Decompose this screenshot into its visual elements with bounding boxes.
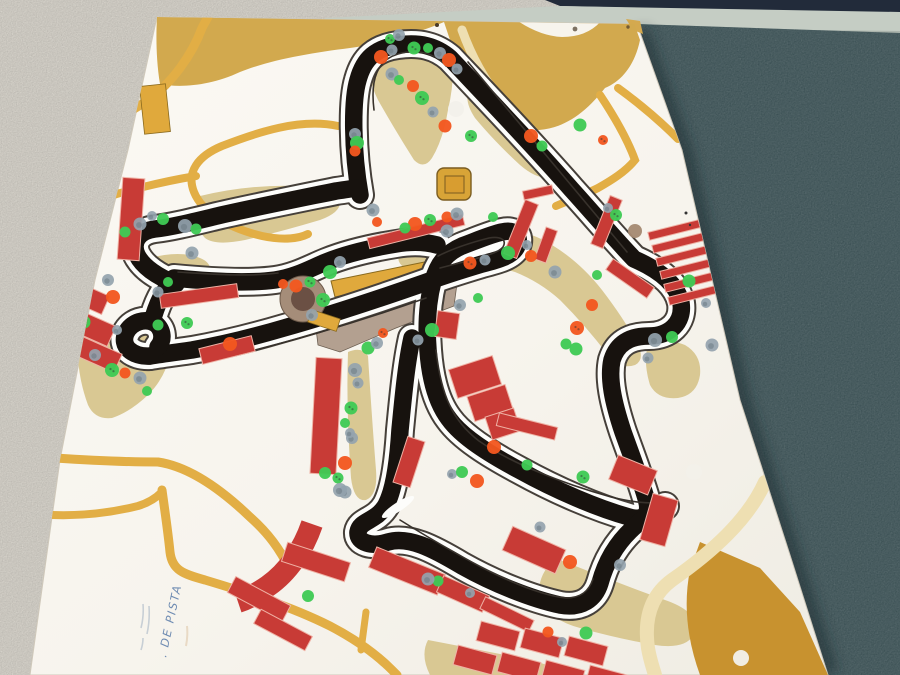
pin-sticker-smudge [456, 303, 461, 308]
pin-sticker-smudge [605, 207, 610, 212]
pin-sticker-smudge [454, 68, 459, 73]
pin-sticker [501, 246, 515, 260]
pin-sticker-ink [467, 261, 469, 263]
pin-sticker-ink [348, 406, 350, 408]
pin-sticker [340, 418, 350, 428]
pin-sticker [666, 331, 678, 343]
pin-sticker [537, 141, 548, 152]
photo-svg: . DE PISTA [0, 0, 900, 675]
pin-sticker-ink [184, 321, 186, 323]
grandstand-building [310, 357, 342, 474]
pin-sticker-smudge [155, 291, 160, 296]
pin-sticker-ink [307, 280, 309, 282]
pin-sticker-smudge [104, 278, 109, 283]
pin-sticker-ink [577, 328, 579, 330]
pin-sticker [302, 590, 314, 602]
pin-sticker [181, 317, 193, 329]
pin-sticker [378, 328, 388, 338]
pin-sticker [142, 386, 152, 396]
pin-sticker-smudge [355, 382, 360, 387]
pin-sticker-smudge [415, 339, 420, 344]
pin-sticker-smudge [388, 72, 394, 78]
pin-sticker-smudge [449, 473, 454, 478]
pin-sticker [415, 91, 429, 105]
pin-sticker-ink [427, 218, 429, 220]
pin-sticker-smudge [651, 338, 657, 344]
pin-sticker-smudge [537, 526, 542, 531]
pin-sticker-smudge [336, 260, 341, 265]
pin-sticker [522, 460, 533, 471]
pin-sticker [465, 130, 477, 142]
pin-sticker-smudge [188, 251, 194, 257]
pin-sticker-smudge [524, 244, 529, 249]
pin-sticker [473, 293, 483, 303]
pin-sticker [563, 555, 577, 569]
pin-sticker [163, 277, 173, 287]
pin-sticker [586, 299, 598, 311]
pin-sticker-ink [390, 39, 392, 41]
pin-sticker-smudge [136, 222, 142, 228]
pin-sticker-smudge [482, 259, 487, 264]
pin-sticker [456, 466, 468, 478]
pin-sticker-ink [470, 263, 472, 265]
pin-sticker [305, 277, 316, 288]
pin-sticker [316, 293, 330, 307]
pin-sticker [425, 323, 439, 337]
helipad-square [437, 168, 471, 200]
pin-sticker-smudge [703, 302, 708, 307]
pin-sticker [290, 280, 303, 293]
pin-sticker [191, 224, 202, 235]
pin-sticker-smudge [467, 592, 472, 597]
pin-sticker-smudge [616, 563, 621, 568]
pin-sticker-ink [583, 477, 585, 479]
pin-sticker-smudge [389, 49, 394, 54]
pin-sticker [424, 214, 436, 226]
pin-sticker [570, 343, 583, 356]
pin-sticker-smudge [181, 224, 187, 230]
pin-sticker-ink [112, 370, 114, 372]
pin-sticker-ink [600, 138, 602, 140]
pin-sticker-ink [387, 37, 389, 39]
pin-sticker [120, 368, 131, 379]
pin-sticker [394, 75, 404, 85]
pin-sticker [448, 101, 464, 117]
pin-sticker [350, 146, 361, 157]
pin-sticker-smudge [351, 368, 357, 374]
pin-sticker [598, 135, 608, 145]
pin-sticker-smudge [347, 432, 352, 437]
pin-sticker-ink [187, 323, 189, 325]
circuit-map-board-photo: . DE PISTA [0, 0, 900, 675]
pin-sticker-smudge [436, 51, 441, 56]
pin-sticker [543, 627, 554, 638]
pin-sticker-smudge [114, 329, 119, 334]
pin-sticker [525, 250, 537, 262]
pin-sticker-ink [323, 300, 325, 302]
pin-sticker-ink [109, 368, 111, 370]
pin-sticker [574, 119, 587, 132]
pin-sticker-ink [574, 326, 576, 328]
pin-sticker-ink [338, 478, 340, 480]
pin-sticker-ink [580, 475, 582, 477]
pin-sticker-smudge [308, 313, 313, 318]
pin-sticker [120, 227, 131, 238]
pin-sticker [345, 402, 358, 415]
pin-sticker-ink [380, 331, 382, 333]
pin-sticker-smudge [136, 376, 142, 382]
pin-sticker-smudge [149, 215, 154, 220]
pin-sticker [223, 337, 237, 351]
pin-sticker [106, 290, 120, 304]
pin-sticker [592, 270, 602, 280]
pin-sticker [408, 42, 421, 55]
gold-structure [140, 84, 171, 134]
pin-sticker [323, 265, 337, 279]
pin-sticker-ink [411, 46, 413, 48]
pin-sticker-ink [383, 333, 385, 335]
pin-sticker-smudge [430, 111, 435, 116]
pin-sticker-ink [471, 136, 473, 138]
pin-sticker-smudge [559, 641, 564, 646]
pin-sticker-ink [422, 98, 424, 100]
pin-sticker [423, 43, 433, 53]
pin-sticker-ink [320, 298, 322, 300]
pin-sticker [524, 129, 538, 143]
pin-sticker [338, 456, 352, 470]
pin-sticker [157, 213, 169, 225]
pin-sticker [374, 50, 388, 64]
grandstand-building [434, 311, 459, 340]
pin-sticker-ink [351, 408, 353, 410]
pin-sticker-smudge [645, 357, 650, 362]
pin-sticker [464, 257, 477, 270]
pin-sticker [570, 321, 584, 335]
pin-sticker [610, 209, 622, 221]
pin-sticker-smudge [395, 33, 400, 38]
pin-sticker [407, 80, 419, 92]
pin-sticker-ink [468, 134, 470, 136]
pin-sticker [733, 650, 749, 666]
pin-sticker [333, 473, 344, 484]
pin-sticker-ink [603, 140, 605, 142]
pin-sticker-ink [414, 48, 416, 50]
pin-sticker-ink [310, 282, 312, 284]
pin-sticker [372, 217, 382, 227]
pin-sticker [105, 363, 119, 377]
pin-sticker [278, 279, 288, 289]
pin-sticker [577, 471, 590, 484]
pin-sticker-ink [616, 215, 618, 217]
pin-sticker-smudge [336, 488, 342, 494]
pin-sticker [683, 275, 696, 288]
pin-sticker-smudge [424, 577, 430, 583]
pin-sticker-ink [419, 96, 421, 98]
pin-sticker [400, 223, 411, 234]
pin-sticker [488, 212, 498, 222]
road-bottom-stub [361, 612, 366, 650]
pin-sticker-smudge [91, 353, 96, 358]
pin-sticker-smudge [551, 270, 557, 276]
pin-sticker [470, 474, 484, 488]
pin-sticker [319, 467, 331, 479]
pin-sticker-ink [613, 213, 615, 215]
pin-sticker-smudge [443, 229, 449, 235]
pin-sticker [487, 440, 501, 454]
pin-sticker-smudge [369, 208, 375, 214]
pin-sticker-smudge [373, 341, 378, 346]
pin-sticker [686, 464, 702, 480]
pin-sticker-ink [335, 476, 337, 478]
pin-sticker [628, 224, 642, 238]
pin-sticker [439, 120, 452, 133]
pin-sticker-smudge [708, 343, 714, 349]
pin-sticker-ink [430, 220, 432, 222]
pin-sticker [580, 627, 593, 640]
pin-sticker-smudge [453, 212, 459, 218]
pin-sticker [153, 320, 164, 331]
